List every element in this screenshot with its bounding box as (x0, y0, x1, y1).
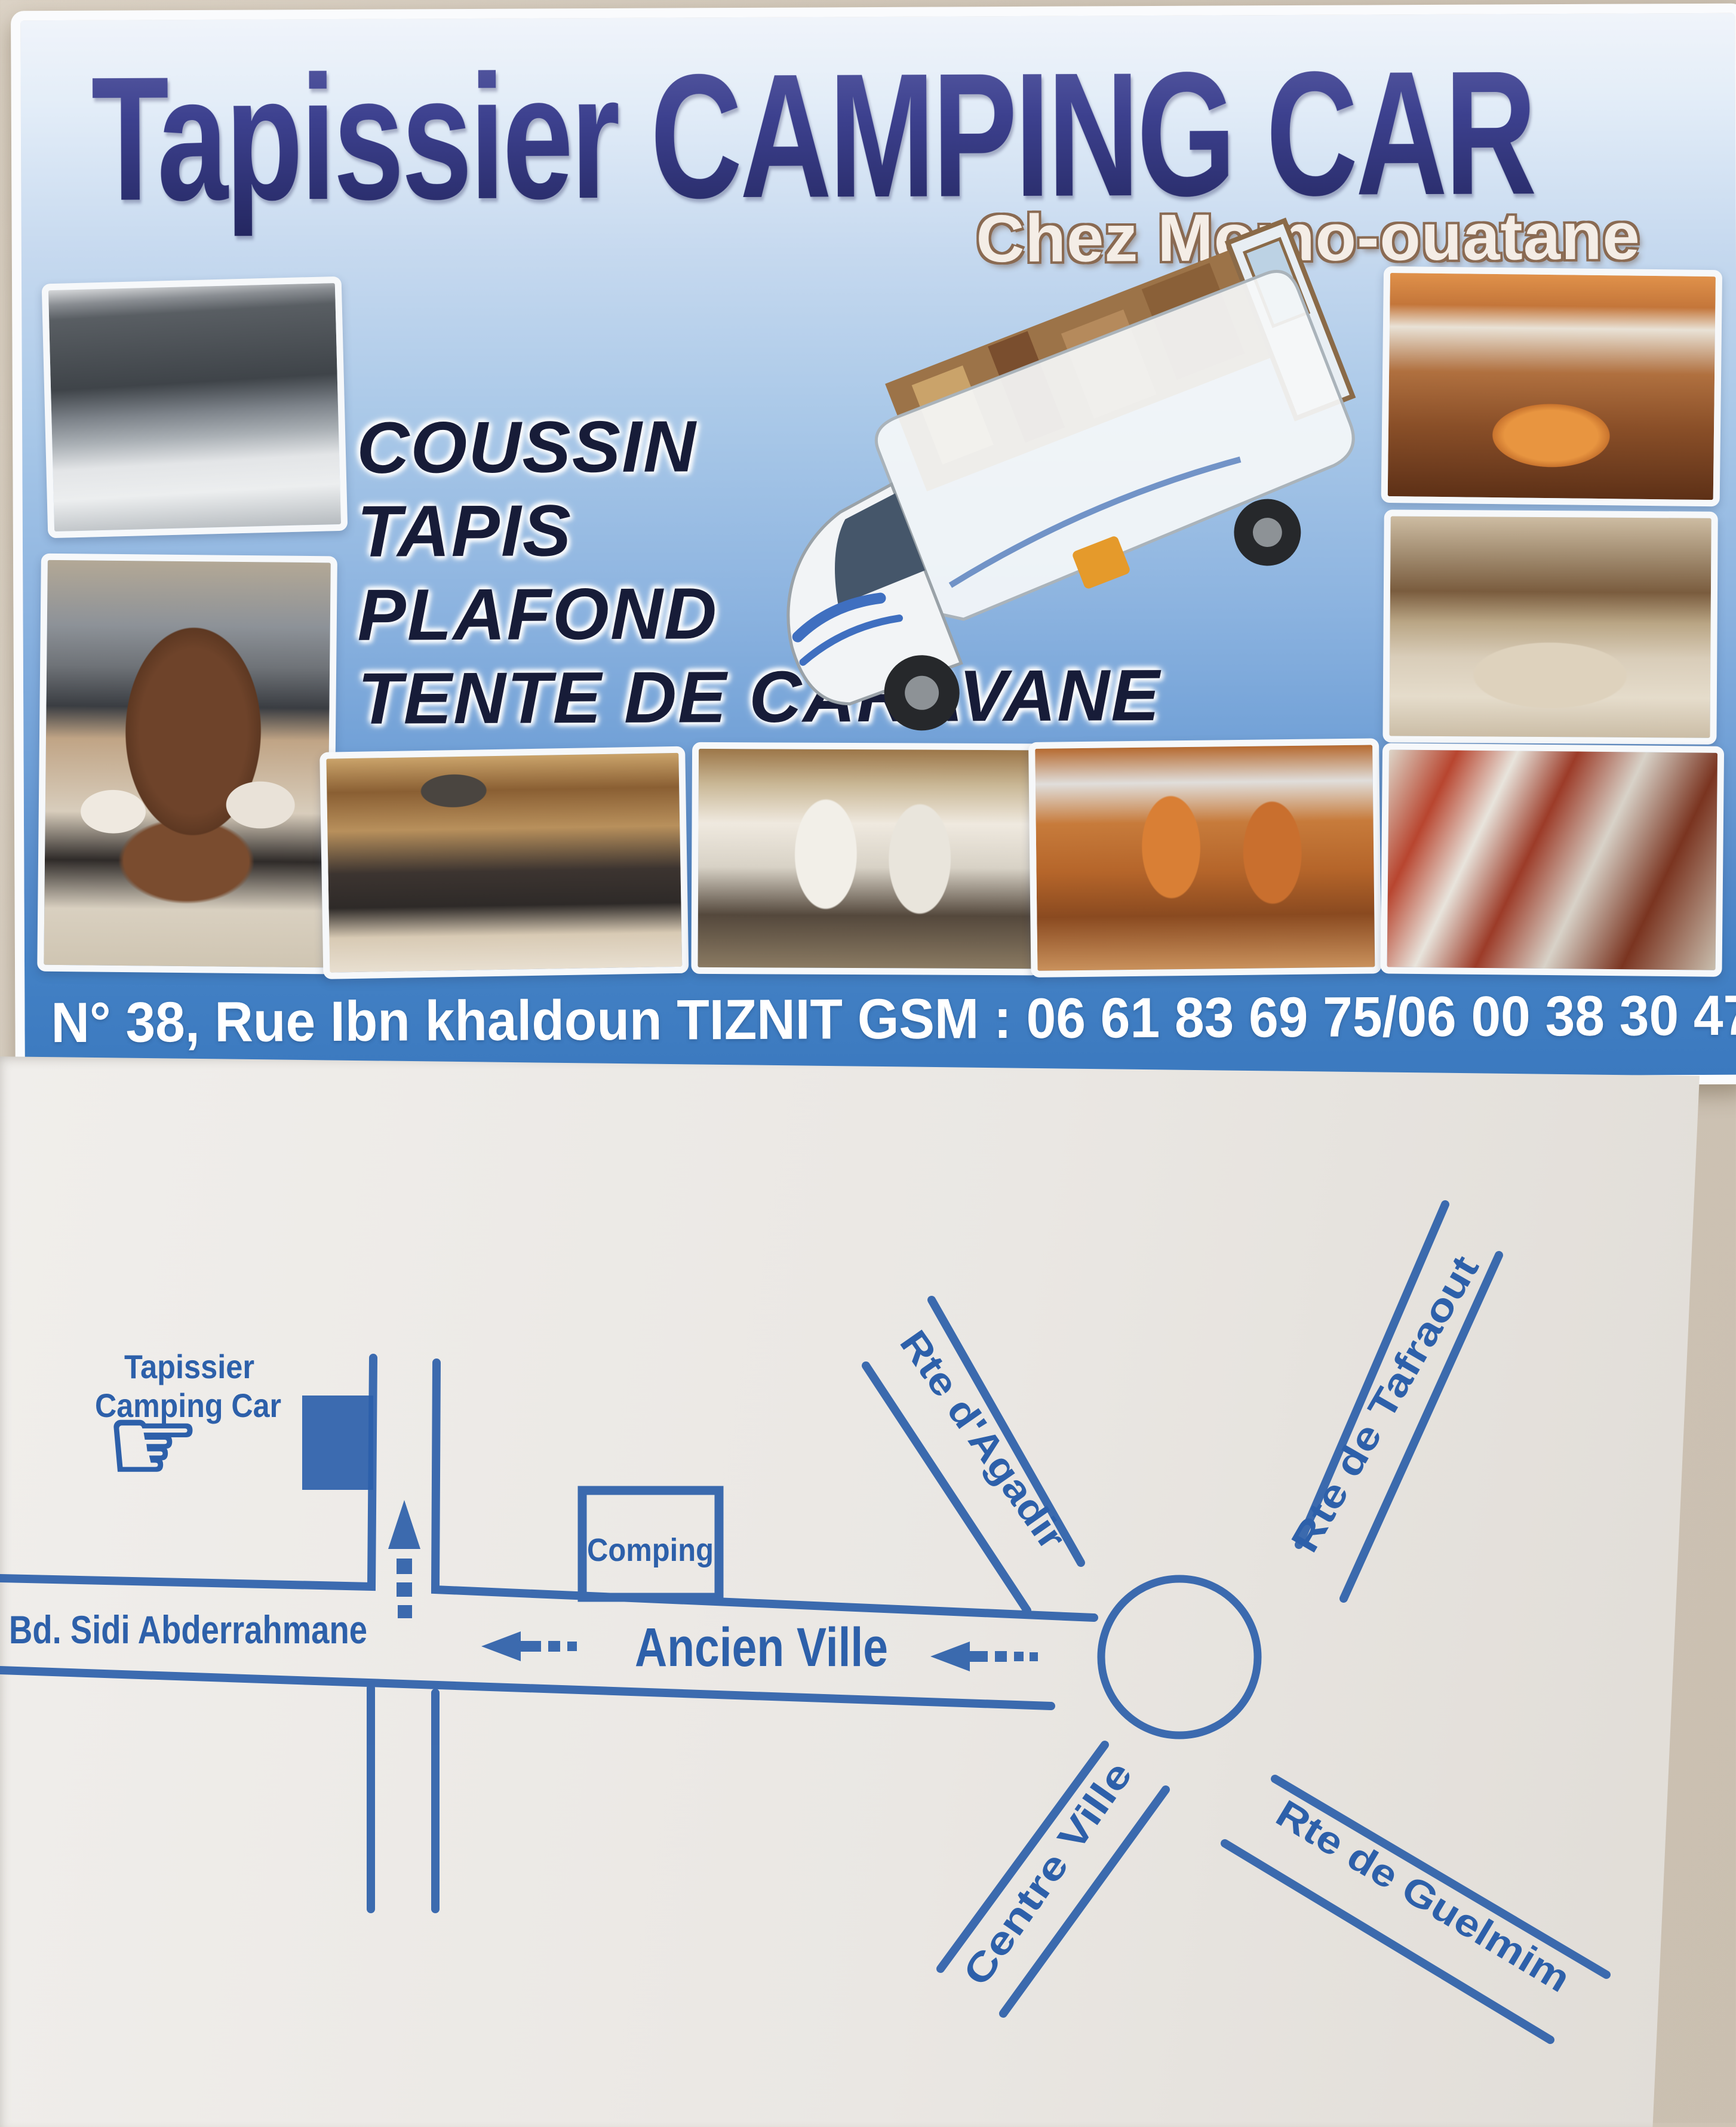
left-arrow-dashed-2 (930, 1642, 1038, 1671)
boulevard-label: Bd. Sidi Abderrahmane (9, 1607, 367, 1652)
shop-building-block (302, 1396, 373, 1490)
photo-van-front (42, 276, 348, 539)
left-arrow-dashed-1 (481, 1631, 577, 1661)
business-card-front: Tapissier CAMPING CAR Chez Momo-ouatane … (11, 4, 1736, 1092)
photo-lounge-interior (319, 746, 689, 979)
shop-label-line1: Tapissier (124, 1348, 254, 1385)
road-bottom-line (0, 1670, 1051, 1706)
photo-kitchen-interior (1380, 743, 1724, 976)
photo-captain-seat (37, 554, 337, 975)
roundabout-circle (1101, 1579, 1258, 1735)
ancien-ville-label: Ancien Ville (635, 1617, 888, 1678)
photo-dinette-interior (1381, 266, 1722, 506)
photo-cab-seats (691, 742, 1041, 976)
photo-orange-seats (1028, 738, 1381, 978)
up-arrow-dashed (388, 1500, 420, 1618)
photo-of-business-cards: { "front": { "title": "Tapissier CAMPING… (0, 0, 1736, 2123)
shop-label-line2: Camping Car (95, 1387, 281, 1424)
location-map: ☞ Tapissier Camping Car Comping Bd. Sidi… (0, 1052, 1736, 2127)
address-line: N° 38, Rue Ibn khaldoun TIZNIT GSM : 06 … (51, 983, 1736, 1056)
road-guelmim-line1 (1275, 1779, 1606, 1975)
comping-label: Comping (587, 1532, 714, 1568)
business-card-back: ☞ Tapissier Camping Car Comping Bd. Sidi… (0, 1052, 1736, 2127)
